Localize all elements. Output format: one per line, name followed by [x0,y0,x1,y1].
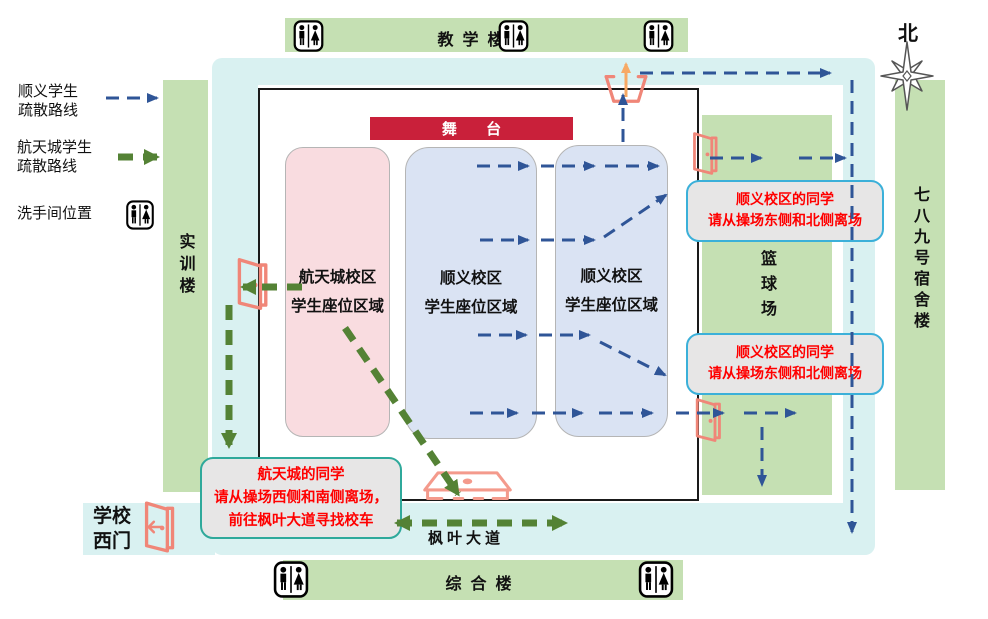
restroom-icon [497,20,530,52]
dormitory-building-label: 七八九号宿舍楼 [895,186,945,333]
stage: 舞 台 [370,117,573,140]
note-line: 顺义校区的同学 [736,343,834,364]
note-line: 前往枫叶大道寻找校车 [229,510,374,533]
note-line: 请从操场西侧和南侧离场， [214,487,388,510]
basketball-court-label: 篮球场 [702,250,832,325]
seat-label: 学生座位区域 [424,293,517,322]
restroom-icon [292,20,325,52]
school-bus-icon [420,470,515,508]
comprehensive-building-label: 综合楼 [393,570,573,594]
note-line: 请从操场东侧和北侧离场 [708,211,862,232]
note-line: 顺义校区的同学 [736,190,834,211]
training-building-label: 实训楼 [163,233,208,299]
school-west-gate-door-icon [139,500,177,554]
seating-shunyi-1: 顺义校区 学生座位区域 [405,147,537,439]
legend-restroom: 洗手间位置 [17,204,92,223]
west-exit-door-icon [232,239,270,329]
seat-label: 顺义校区 [580,262,642,291]
note-line: 请从操场东侧和北侧离场 [708,364,862,385]
legend-hangtiancheng-route: 航天城学生 疏散路线 [17,138,92,176]
note-shunyi-exit-south: 顺义校区的同学 请从操场东侧和北侧离场 [686,333,884,395]
east-exit-door-icon-north [688,131,720,176]
restroom-icon [636,561,676,598]
seat-label: 顺义校区 [440,264,502,293]
teaching-building-label: 教学楼 [385,26,565,50]
east-exit-door-icon-south [691,395,723,445]
restroom-icon [271,561,311,598]
note-line: 航天城的同学 [258,464,345,487]
west-gate-label: 学校 西门 [93,504,131,554]
evacuation-map: 舞 台 航天城校区 学生座位区域 顺义校区 学生座位区域 顺义校区 学生座位区域… [0,0,988,619]
legend-shunyi-route: 顺义学生 疏散路线 [18,82,78,120]
north-exit-gate-icon [601,71,651,105]
stage-label: 舞 台 [442,118,513,139]
seat-label: 航天城校区 [299,263,377,292]
compass-rose-icon [879,40,935,112]
seating-shunyi-2: 顺义校区 学生座位区域 [555,145,668,437]
restroom-icon [642,20,675,52]
note-shunyi-exit-north: 顺义校区的同学 请从操场东侧和北侧离场 [686,180,884,242]
seat-label: 学生座位区域 [291,292,384,321]
seating-hangtiancheng: 航天城校区 学生座位区域 [285,147,390,437]
seat-label: 学生座位区域 [565,291,658,320]
note-hangtiancheng-exit: 航天城的同学 请从操场西侧和南侧离场， 前往枫叶大道寻找校车 [200,457,402,539]
restroom-icon [126,198,154,232]
maple-avenue-label: 枫叶大道 [428,527,504,548]
